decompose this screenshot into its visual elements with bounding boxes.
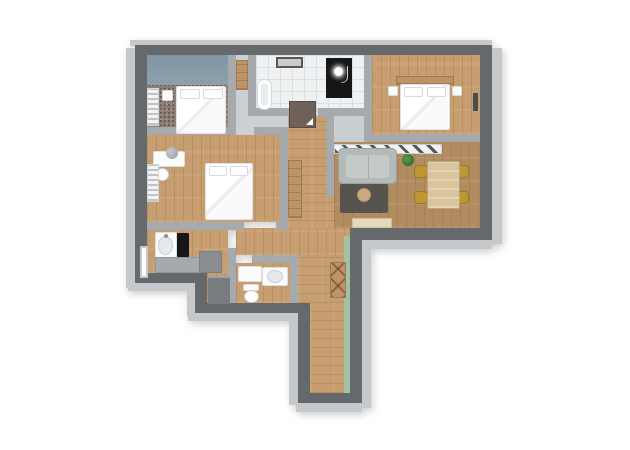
kitchen-cooktop — [177, 233, 189, 257]
vestibule-floor — [236, 116, 288, 127]
floorplan-canvas — [0, 0, 630, 450]
wall-bathroom-bottom-left — [248, 108, 290, 116]
bedroom3-pillow-left — [209, 166, 227, 176]
exterior-wall-top — [135, 45, 490, 55]
floorplan-screenshot — [0, 0, 630, 450]
wall-bedroom2-living — [364, 134, 480, 142]
closet-shelf — [236, 60, 248, 90]
bedroom1-radiator — [147, 88, 159, 126]
bedroom1-pillow-left — [180, 89, 200, 99]
kitchen-fridge — [208, 276, 230, 304]
entrance-arrow-marker — [306, 118, 313, 125]
toilet-bowl — [244, 290, 259, 303]
vestibule-doorway — [236, 127, 254, 135]
outer-wall-face-corridor-right — [362, 240, 371, 408]
bedroom3-radiator — [147, 164, 159, 202]
kitchen-window — [140, 246, 148, 278]
bedroom2-nightstand-right — [452, 86, 462, 96]
outer-wall-face-wc-bottom — [188, 313, 298, 321]
exterior-wall-wc-bottom — [195, 303, 310, 313]
bedroom1-nightstand — [162, 90, 173, 101]
bedroom2-wall-radiator — [473, 93, 478, 111]
outer-wall-face-kitchen-bottom — [128, 283, 198, 291]
shower-cabin — [326, 58, 352, 98]
pouf — [357, 188, 371, 202]
outer-wall-face-living-bottom — [352, 240, 492, 249]
bathroom-mirror — [276, 57, 303, 68]
outer-wall-face-right — [492, 48, 502, 244]
hallway-wardrobe — [288, 160, 302, 218]
wall-bathroom-bottom-right — [318, 108, 364, 116]
hall-living-connector-floor — [326, 196, 334, 230]
exterior-wall-corridor-left — [298, 303, 310, 403]
sofa — [338, 148, 397, 184]
bathtub — [257, 79, 272, 110]
exterior-wall-living-bottom — [350, 228, 492, 240]
bedroom2-pillow-right — [427, 87, 446, 97]
living-sideboard — [352, 218, 392, 228]
wall-closet-bathroom — [248, 55, 256, 108]
kitchen-faucet — [164, 234, 168, 238]
entrance-door — [289, 101, 316, 128]
wall-bedroom3-bottom-right — [276, 222, 280, 230]
bedroom1-accent-wall — [147, 55, 228, 85]
outer-wall-face-left — [126, 48, 135, 288]
bathtub-basin — [261, 83, 268, 106]
washing-machine — [238, 266, 262, 282]
hall-mid-floor — [236, 228, 350, 255]
bedroom2-pillow-left — [404, 87, 423, 97]
wall-mass-above-living — [334, 116, 364, 144]
bedroom3-desk-lamp — [166, 147, 178, 159]
exterior-wall-right — [480, 45, 492, 240]
exterior-wall-corridor-right — [350, 235, 362, 403]
bedroom3-pillow-right — [230, 166, 248, 176]
shower-hose — [341, 66, 348, 83]
dining-chair-bottom-left — [414, 191, 428, 204]
outer-wall-face-corridor-left — [289, 310, 298, 405]
wc-sink-basin — [267, 270, 283, 283]
potted-plant — [402, 154, 414, 166]
bedroom1-pillow-right — [203, 89, 223, 99]
wall-bathroom-bedroom2 — [364, 55, 372, 142]
corridor-cross-cabinet — [330, 262, 346, 298]
bedroom2-nightstand-left — [388, 86, 398, 96]
dining-chair-top-left — [414, 165, 428, 178]
wall-bedroom1-closet — [228, 55, 236, 135]
wall-bedroom3-bottom-left — [147, 222, 244, 230]
dining-table — [427, 161, 460, 209]
wall-hall-left — [280, 135, 288, 230]
kitchen-sink-basin — [158, 236, 173, 255]
sofa-cushion-split — [368, 155, 369, 178]
wall-hall-right — [326, 116, 334, 196]
outer-wall-face-corridor-bottom — [296, 403, 362, 412]
wall-wc-right — [290, 255, 298, 303]
wall-vestibule-bottom — [254, 127, 288, 135]
kitchen-counter-dark — [199, 251, 222, 273]
